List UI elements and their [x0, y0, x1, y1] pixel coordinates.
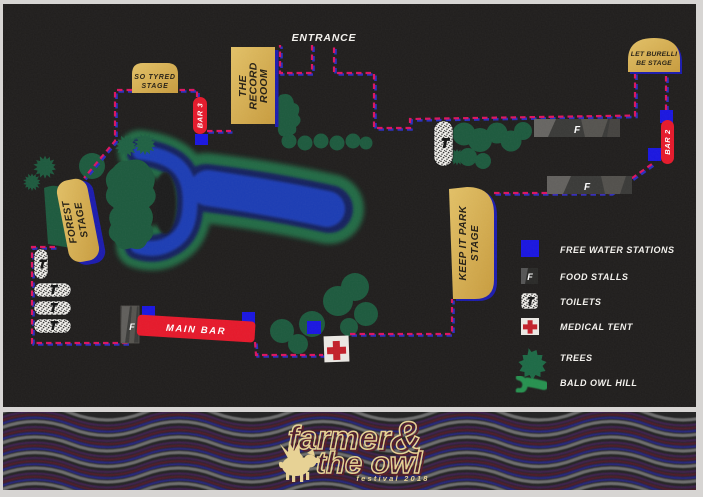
svg-text:festival 2018: festival 2018: [356, 474, 429, 483]
